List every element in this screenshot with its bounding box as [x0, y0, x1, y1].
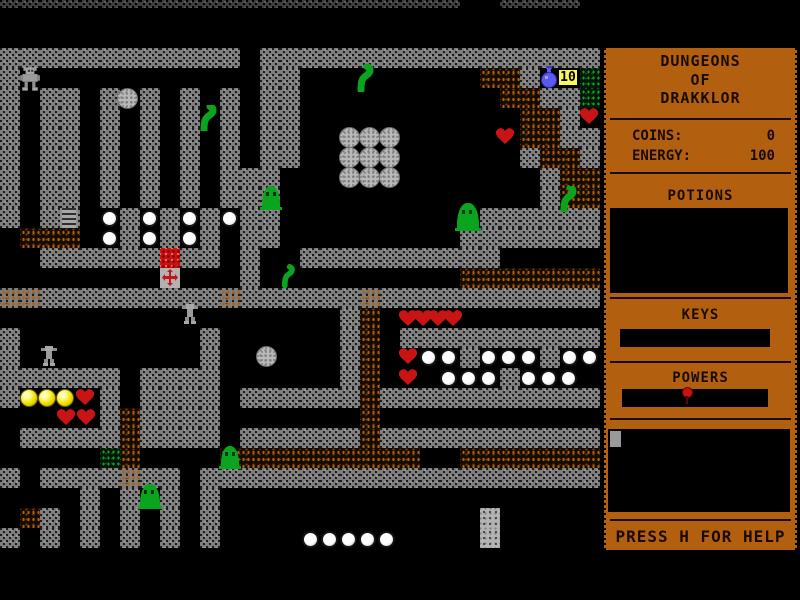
map-tile-wall — [320, 388, 340, 408]
map-tile-wall — [100, 148, 120, 168]
heart — [399, 348, 417, 364]
map-tile-wall — [60, 188, 80, 208]
player-robot — [19, 66, 41, 91]
map-tile-wall — [500, 468, 520, 488]
white-ball — [141, 230, 158, 247]
worm — [280, 264, 296, 288]
map-tile-wall — [200, 328, 220, 348]
map-tile-wall — [280, 428, 300, 448]
map-tile-wall — [420, 388, 440, 408]
map-tile-wall — [40, 148, 60, 168]
map-tile-dirt — [560, 448, 580, 468]
map-tile-wall — [200, 488, 220, 508]
map-tile-dirt — [460, 448, 480, 468]
map-tile-dirt — [540, 128, 560, 148]
map-tile-wall — [380, 288, 400, 308]
gray-ball — [256, 346, 277, 367]
map-tile-wall — [0, 68, 20, 88]
map-tile-wall — [540, 88, 560, 108]
map-tile-dark-wall — [120, 0, 140, 8]
map-tile-wall — [140, 288, 160, 308]
white-ball — [480, 349, 497, 366]
map-tile-wall — [320, 248, 340, 268]
map-tile-wall — [440, 388, 460, 408]
game-screen: 10 DUNGEONS OF DRAKKLOR COINS: 0 ENERGY:… — [0, 0, 800, 600]
map-tile-dirt — [460, 268, 480, 288]
map-tile-dirt — [500, 88, 520, 108]
map-tile-wall — [340, 368, 360, 388]
map-tile-wall — [540, 288, 560, 308]
map-tile-wall — [200, 208, 220, 228]
map-tile-wall — [140, 148, 160, 168]
divider — [610, 519, 791, 521]
map-tile-wall — [460, 288, 480, 308]
map-tile-wall — [140, 108, 160, 128]
map-tile-dirt — [60, 228, 80, 248]
map-tile-wall — [280, 128, 300, 148]
divider — [610, 172, 791, 174]
map-tile-dirt — [360, 348, 380, 368]
map-tile-wall — [40, 528, 60, 548]
map-tile-wall — [580, 228, 600, 248]
map-tile-wall — [520, 428, 540, 448]
robot — [39, 346, 59, 366]
heart — [496, 128, 514, 144]
white-ball — [480, 370, 497, 387]
map-tile-wall — [0, 328, 20, 348]
map-tile-wall — [60, 248, 80, 268]
white-ball — [540, 370, 557, 387]
map-tile-wall — [240, 188, 260, 208]
map-tile-dirt — [480, 68, 500, 88]
map-tile-wall — [300, 468, 320, 488]
white-ball — [520, 349, 537, 366]
map-tile-wall — [100, 48, 120, 68]
map-tile-wall — [80, 528, 100, 548]
map-tile-wall — [120, 228, 140, 248]
map-tile-wall — [40, 288, 60, 308]
map-tile-wall — [560, 428, 580, 448]
dungeon-map[interactable]: 10 — [0, 0, 600, 600]
map-tile-wall — [100, 188, 120, 208]
map-tile-wall — [160, 288, 180, 308]
map-tile-dirt — [20, 228, 40, 248]
map-tile-wall — [240, 208, 260, 228]
map-tile-dirt — [280, 448, 300, 468]
map-tile-wall — [0, 188, 20, 208]
map-tile-wall — [560, 468, 580, 488]
map-tile-wall — [20, 368, 40, 388]
map-tile-wall — [180, 188, 200, 208]
map-tile-wall — [40, 188, 60, 208]
map-tile-wall — [260, 128, 280, 148]
map-tile-wall — [460, 348, 480, 368]
map-tile-wall — [560, 328, 580, 348]
energy-label: ENERGY: — [632, 148, 691, 164]
worm — [557, 186, 579, 212]
map-tile-wall — [180, 248, 200, 268]
map-tile-wall — [580, 328, 600, 348]
slime — [262, 186, 280, 210]
map-tile-wall — [140, 48, 160, 68]
white-ball — [101, 230, 118, 247]
coin — [38, 389, 56, 407]
map-tile-dirt — [360, 428, 380, 448]
map-tile-wall — [280, 68, 300, 88]
map-tile-wall — [240, 268, 260, 288]
white-ball — [141, 210, 158, 227]
map-tile-wall — [220, 188, 240, 208]
map-tile-wall — [80, 368, 100, 388]
map-tile-wall — [120, 248, 140, 268]
cross-block — [160, 268, 180, 288]
map-tile-wall — [60, 288, 80, 308]
map-tile-wall — [420, 288, 440, 308]
map-tile-wall — [540, 48, 560, 68]
map-tile-wall — [480, 428, 500, 448]
map-tile-wall — [140, 188, 160, 208]
map-tile-dark-wall — [360, 0, 380, 8]
map-tile-wall — [240, 468, 260, 488]
map-tile-wall — [200, 288, 220, 308]
map-tile-dirt — [580, 448, 600, 468]
slime — [457, 203, 479, 231]
map-tile-dirt — [560, 168, 580, 188]
map-tile-wall — [40, 168, 60, 188]
map-tile-dirt — [500, 268, 520, 288]
map-tile-wall — [140, 408, 160, 428]
heart — [76, 389, 94, 405]
map-tile-dark-wall — [200, 0, 220, 8]
map-tile-wall — [320, 288, 340, 308]
map-tile-dark-wall — [340, 0, 360, 8]
heart — [399, 369, 417, 385]
map-tile-wall — [40, 88, 60, 108]
map-tile-wall — [420, 48, 440, 68]
map-tile-wall — [160, 388, 180, 408]
keys-inventory-box — [620, 329, 770, 347]
map-tile-rubble — [480, 508, 500, 528]
map-tile-moss — [580, 68, 600, 88]
map-tile-wall — [580, 128, 600, 148]
gray-ball — [379, 127, 400, 148]
map-tile-wall — [560, 48, 580, 68]
map-tile-dirt — [360, 448, 380, 468]
map-tile-wall — [560, 108, 580, 128]
map-tile-wall — [240, 388, 260, 408]
map-tile-wall — [520, 328, 540, 348]
map-tile-wall — [220, 468, 240, 488]
map-tile-wall — [380, 428, 400, 448]
map-tile-wall — [260, 168, 280, 188]
map-tile-wall — [100, 288, 120, 308]
map-tile-wall — [380, 388, 400, 408]
map-tile-wall — [340, 468, 360, 488]
map-tile-wall — [180, 368, 200, 388]
map-tile-wall — [520, 68, 540, 88]
map-tile-wall — [580, 468, 600, 488]
map-tile-dirt — [300, 448, 320, 468]
power-pin-icon — [682, 387, 693, 398]
map-tile-wall — [0, 168, 20, 188]
map-tile-wall — [580, 48, 600, 68]
map-tile-wall — [200, 428, 220, 448]
map-tile-wall — [500, 368, 520, 388]
map-tile-wall — [580, 388, 600, 408]
map-tile-wall — [40, 248, 60, 268]
map-tile-wall — [40, 368, 60, 388]
map-tile-wall — [240, 248, 260, 268]
map-tile-dark-wall — [260, 0, 280, 8]
map-tile-wall — [320, 48, 340, 68]
map-tile-dark-wall — [400, 0, 420, 8]
map-tile-dark-wall — [40, 0, 60, 8]
powers-heading: POWERS — [604, 371, 797, 386]
status-sidebar: DUNGEONS OF DRAKKLOR COINS: 0 ENERGY: 10… — [604, 48, 797, 550]
map-tile-wall — [500, 328, 520, 348]
map-tile-dirt — [500, 448, 520, 468]
map-tile-wall — [60, 468, 80, 488]
map-tile-dirt — [20, 508, 40, 528]
map-tile-dirt — [260, 448, 280, 468]
keys-heading: KEYS — [604, 308, 797, 323]
map-tile-wall — [260, 148, 280, 168]
map-tile-wall — [200, 388, 220, 408]
map-tile-dirt — [120, 408, 140, 428]
map-tile-wall — [460, 48, 480, 68]
map-tile-wall — [60, 368, 80, 388]
cursor-chip — [610, 431, 621, 447]
map-tile-wall — [420, 328, 440, 348]
map-tile-dirt — [480, 268, 500, 288]
map-tile-wall — [500, 48, 520, 68]
map-tile-dark-wall — [280, 0, 300, 8]
map-tile-dark-wall — [500, 0, 520, 8]
map-tile-wall — [520, 208, 540, 228]
map-tile-wall — [0, 208, 20, 228]
map-tile-dark-wall — [220, 0, 240, 8]
map-tile-wall — [400, 48, 420, 68]
white-ball — [359, 531, 376, 548]
map-tile-dark-wall — [380, 0, 400, 8]
message-box — [608, 429, 790, 512]
gray-ball — [359, 127, 380, 148]
map-tile-wall — [220, 108, 240, 128]
map-tile-wall — [520, 288, 540, 308]
map-tile-wall-dirt — [220, 288, 240, 308]
map-tile-wall — [300, 388, 320, 408]
map-tile-dark-wall — [320, 0, 340, 8]
energy-row: ENERGY: 100 — [632, 148, 775, 164]
map-tile-wall — [360, 468, 380, 488]
map-tile-wall — [300, 288, 320, 308]
map-tile-wall — [60, 148, 80, 168]
map-tile-wall — [240, 168, 260, 188]
map-tile-wall — [460, 388, 480, 408]
white-ball — [560, 370, 577, 387]
map-tile-wall — [480, 208, 500, 228]
map-tile-wall — [80, 48, 100, 68]
map-tile-wall — [440, 328, 460, 348]
map-tile-wall — [320, 468, 340, 488]
map-tile-dark-wall — [20, 0, 40, 8]
map-tile-wall — [560, 288, 580, 308]
map-tile-dirt — [360, 308, 380, 328]
count-badge: 10 — [558, 69, 578, 86]
map-tile-wall — [260, 88, 280, 108]
map-tile-wall — [440, 468, 460, 488]
map-tile-wall — [140, 388, 160, 408]
heart — [429, 310, 447, 326]
map-tile-wall — [540, 228, 560, 248]
map-tile-dark-wall — [160, 0, 180, 8]
potions-heading: POTIONS — [604, 189, 797, 204]
map-tile-wall — [140, 88, 160, 108]
map-tile-wall — [160, 48, 180, 68]
map-tile-wall — [500, 388, 520, 408]
gray-ball — [379, 147, 400, 168]
map-tile-wall — [0, 368, 20, 388]
map-tile-wall — [220, 48, 240, 68]
map-tile-dirt — [580, 188, 600, 208]
map-tile-wall — [340, 288, 360, 308]
map-tile-dirt — [520, 128, 540, 148]
map-tile-wall — [280, 88, 300, 108]
gray-ball — [117, 88, 138, 109]
map-tile-dirt — [500, 68, 520, 88]
red-block — [160, 248, 180, 268]
map-tile-wall — [360, 248, 380, 268]
map-tile-wall — [460, 248, 480, 268]
map-tile-wall — [20, 48, 40, 68]
map-tile-wall — [500, 228, 520, 248]
map-tile-wall — [40, 128, 60, 148]
map-tile-wall — [280, 48, 300, 68]
map-tile-wall — [540, 428, 560, 448]
map-tile-rubble — [480, 528, 500, 548]
map-tile-wall — [340, 348, 360, 368]
map-tile-dark-wall — [240, 0, 260, 8]
map-tile-wall — [60, 88, 80, 108]
map-tile-wall — [80, 288, 100, 308]
map-tile-dirt — [560, 268, 580, 288]
map-tile-dark-wall — [100, 0, 120, 8]
map-tile-wall — [100, 248, 120, 268]
white-ball — [321, 531, 338, 548]
map-tile-wall — [160, 468, 180, 488]
map-tile-dark-wall — [80, 0, 100, 8]
divider — [610, 418, 791, 420]
map-tile-dirt — [540, 448, 560, 468]
white-ball — [181, 230, 198, 247]
map-tile-wall — [500, 428, 520, 448]
map-tile-wall — [60, 108, 80, 128]
white-ball — [581, 349, 598, 366]
map-tile-wall — [300, 48, 320, 68]
map-tile-dirt — [120, 448, 140, 468]
map-tile-wall — [280, 288, 300, 308]
map-tile-wall — [180, 408, 200, 428]
map-tile-wall — [280, 388, 300, 408]
map-tile-wall — [60, 128, 80, 148]
gray-ball — [339, 147, 360, 168]
map-tile-dirt — [360, 388, 380, 408]
coins-label: COINS: — [632, 128, 683, 144]
map-tile-wall — [580, 148, 600, 168]
map-tile-dirt — [520, 108, 540, 128]
map-tile-dark-wall — [440, 0, 460, 8]
map-tile-wall — [520, 468, 540, 488]
map-tile-dark-wall — [60, 0, 80, 8]
map-tile-wall — [140, 248, 160, 268]
map-tile-dirt — [580, 268, 600, 288]
map-tile-wall — [480, 468, 500, 488]
map-tile-wall — [500, 208, 520, 228]
slime — [221, 446, 239, 469]
help-text: PRESS H FOR HELP — [604, 528, 797, 545]
energy-value: 100 — [750, 148, 775, 164]
map-tile-wall — [160, 228, 180, 248]
map-tile-wall — [400, 288, 420, 308]
map-tile-wall — [160, 408, 180, 428]
map-tile-wall — [380, 48, 400, 68]
ladder — [60, 208, 78, 228]
map-tile-wall — [340, 308, 360, 328]
map-tile-wall — [180, 168, 200, 188]
map-tile-wall — [300, 428, 320, 448]
white-ball — [101, 210, 118, 227]
map-tile-wall — [40, 468, 60, 488]
map-tile-wall — [200, 468, 220, 488]
coin — [20, 389, 38, 407]
map-tile-wall — [340, 248, 360, 268]
potion — [539, 66, 559, 88]
map-tile-wall — [200, 48, 220, 68]
map-tile-dirt — [120, 428, 140, 448]
map-tile-wall — [580, 288, 600, 308]
map-tile-dark-wall — [0, 0, 20, 8]
map-tile-wall — [420, 428, 440, 448]
map-tile-wall — [400, 428, 420, 448]
map-tile-dirt — [360, 328, 380, 348]
map-tile-wall — [560, 88, 580, 108]
map-tile-wall — [200, 228, 220, 248]
map-tile-dark-wall — [540, 0, 560, 8]
map-tile-wall — [480, 288, 500, 308]
map-tile-wall — [0, 348, 20, 368]
map-tile-wall — [260, 48, 280, 68]
map-tile-dirt — [340, 448, 360, 468]
map-tile-wall — [540, 168, 560, 188]
heart — [580, 108, 598, 124]
map-tile-wall — [180, 148, 200, 168]
coins-value: 0 — [767, 128, 775, 144]
map-tile-wall — [120, 288, 140, 308]
map-tile-wall — [80, 508, 100, 528]
gray-ball — [379, 167, 400, 188]
map-tile-dirt — [540, 108, 560, 128]
map-tile-wall — [120, 528, 140, 548]
map-tile-wall — [480, 388, 500, 408]
potions-inventory-box — [610, 208, 788, 293]
map-tile-wall — [100, 428, 120, 448]
map-tile-wall — [280, 148, 300, 168]
map-tile-wall — [120, 48, 140, 68]
map-tile-dirt — [400, 448, 420, 468]
map-tile-wall — [160, 208, 180, 228]
map-tile-wall — [260, 208, 280, 228]
map-tile-wall — [280, 468, 300, 488]
